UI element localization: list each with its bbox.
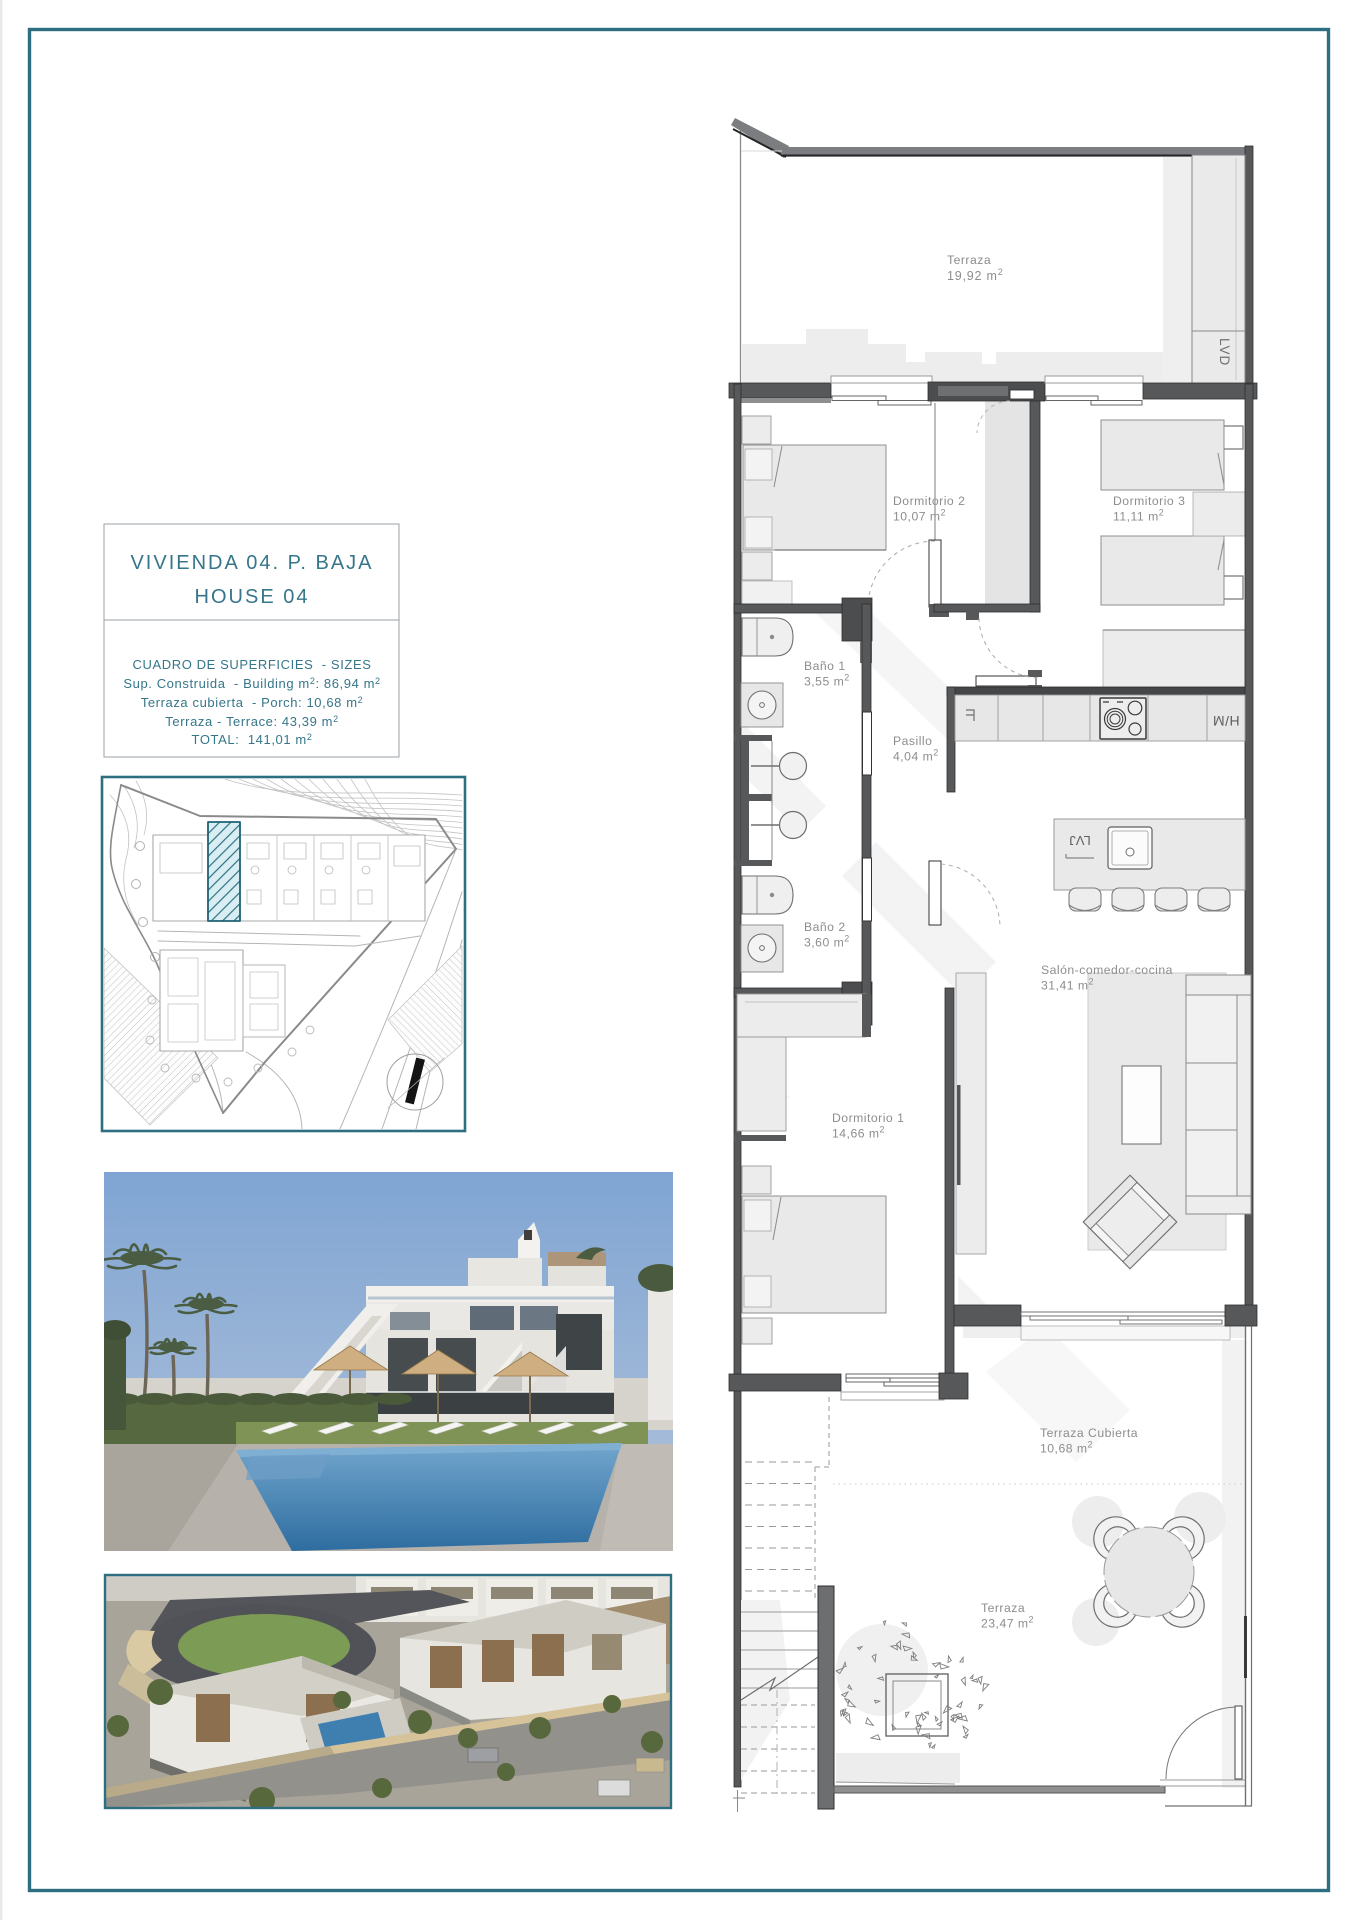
svg-text:23,47 m2: 23,47 m2	[981, 1615, 1034, 1631]
svg-text:Terraza cubierta - Porch: 10,: Terraza cubierta - Porch: 10,68 m2	[141, 695, 364, 710]
svg-text:VIVIENDA 04. P. BAJA: VIVIENDA 04. P. BAJA	[130, 552, 373, 574]
svg-text:Dormitorio 3: Dormitorio 3	[1113, 494, 1185, 508]
svg-text:Baño 1: Baño 1	[804, 659, 846, 673]
svg-text:LVD: LVD	[1217, 338, 1232, 366]
svg-text:Terraza - Terrace: 43,39 m2: Terraza - Terrace: 43,39 m2	[165, 714, 338, 729]
svg-text:Terraza: Terraza	[947, 253, 991, 267]
svg-text:Baño 2: Baño 2	[804, 920, 846, 934]
svg-text:14,66 m2: 14,66 m2	[832, 1125, 885, 1141]
svg-text:10,07 m2: 10,07 m2	[893, 508, 946, 524]
svg-text:31,41 m2: 31,41 m2	[1041, 977, 1094, 993]
svg-text:Sup. Construida - Building m2: Sup. Construida - Building m2: 86,94 m2	[123, 676, 380, 691]
svg-text:Terraza: Terraza	[981, 1601, 1025, 1615]
svg-text:10,68 m2: 10,68 m2	[1040, 1440, 1093, 1456]
svg-text:11,11 m2: 11,11 m2	[1113, 508, 1164, 524]
svg-text:3,60 m2: 3,60 m2	[804, 934, 850, 950]
svg-text:HOUSE 04: HOUSE 04	[195, 586, 310, 608]
svg-text:Salón-comedor-cocina: Salón-comedor-cocina	[1041, 963, 1173, 977]
svg-text:TOTAL: 141,01 m2: TOTAL: 141,01 m2	[192, 732, 313, 747]
svg-text:CUADRO DE SUPERFICIES - SIZES: CUADRO DE SUPERFICIES - SIZES	[132, 657, 371, 672]
svg-text:Pasillo: Pasillo	[893, 734, 932, 748]
svg-text:LVJ: LVJ	[1069, 833, 1090, 848]
svg-text:H/M: H/M	[1212, 713, 1239, 729]
svg-text:4,04 m2: 4,04 m2	[893, 748, 939, 764]
svg-text:Dormitorio 2: Dormitorio 2	[893, 494, 965, 508]
svg-text:Dormitorio 1: Dormitorio 1	[832, 1111, 904, 1125]
svg-text:19,92 m2: 19,92 m2	[947, 267, 1004, 283]
svg-text:3,55 m2: 3,55 m2	[804, 673, 850, 689]
svg-text:Terraza Cubierta: Terraza Cubierta	[1040, 1426, 1138, 1440]
